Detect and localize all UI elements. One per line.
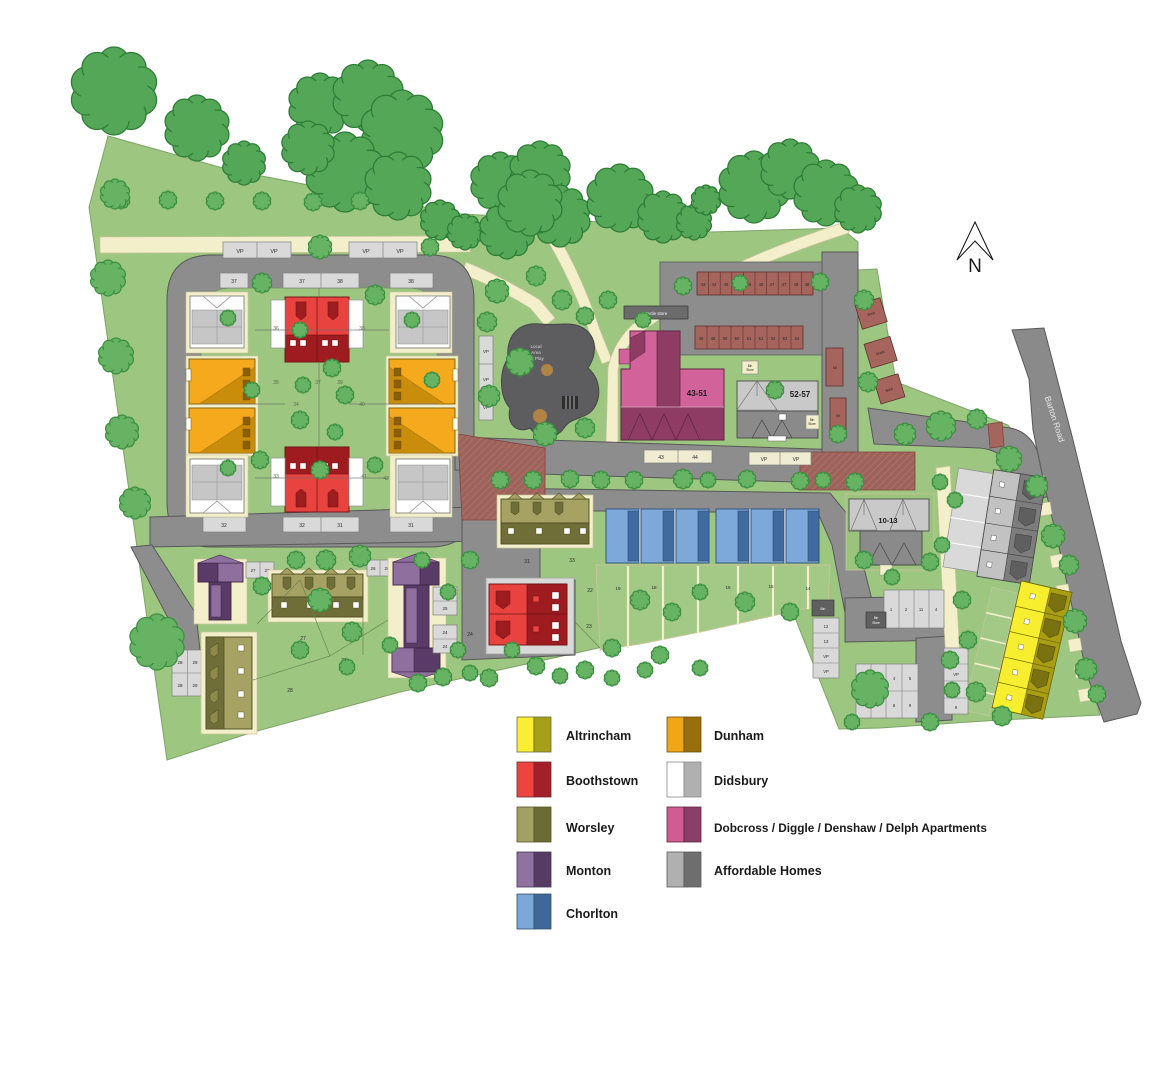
svg-text:Store: Store [746,368,754,372]
svg-text:VP: VP [823,654,829,659]
svg-text:Area: Area [531,350,541,355]
svg-text:Chorlton: Chorlton [566,907,618,921]
svg-text:VP: VP [362,249,370,255]
svg-text:Boothstown: Boothstown [566,774,638,788]
svg-text:Dunham: Dunham [714,729,764,743]
svg-text:24: 24 [467,632,473,638]
svg-text:Didsbury: Didsbury [714,774,768,788]
svg-text:29: 29 [192,683,198,688]
svg-text:VP: VP [793,457,800,463]
svg-text:32: 32 [299,523,305,529]
svg-text:14: 14 [805,586,811,591]
svg-text:Store: Store [872,621,880,625]
svg-text:24: 24 [442,644,448,649]
svg-text:31: 31 [408,523,414,529]
svg-text:45: 45 [724,282,729,287]
svg-text:13: 13 [824,639,829,644]
svg-text:49: 49 [699,336,704,341]
svg-text:VP: VP [236,249,244,255]
svg-text:33: 33 [569,558,575,564]
svg-text:44: 44 [712,282,717,287]
svg-text:38: 38 [359,326,365,332]
svg-text:53: 53 [783,336,788,341]
svg-text:38: 38 [337,279,343,285]
svg-text:28: 28 [177,683,183,688]
svg-text:15: 15 [768,584,774,589]
svg-text:19: 19 [615,586,621,591]
svg-text:31: 31 [337,523,343,529]
svg-text:47: 47 [770,282,775,287]
svg-text:43: 43 [701,282,706,287]
svg-text:VP: VP [953,672,959,677]
svg-text:10-13: 10-13 [878,516,897,525]
svg-text:42: 42 [383,476,389,482]
svg-text:52: 52 [771,336,776,341]
svg-text:44: 44 [692,455,698,461]
svg-text:43: 43 [658,455,664,461]
svg-text:50: 50 [735,336,740,341]
svg-text:52-57: 52-57 [790,390,811,399]
svg-text:N: N [968,256,982,277]
svg-text:Bin: Bin [821,607,826,611]
svg-text:39: 39 [337,380,343,386]
svg-text:34: 34 [293,402,299,408]
svg-text:37: 37 [231,279,237,285]
svg-text:48: 48 [711,336,716,341]
svg-text:Local: Local [531,344,542,349]
svg-text:Dobcross / Diggle / Denshaw /: Dobcross / Diggle / Denshaw / Delph Apar… [714,821,987,835]
svg-text:Altrincham: Altrincham [566,729,631,743]
svg-text:18: 18 [651,585,657,590]
svg-text:11: 11 [919,607,924,612]
svg-text:46: 46 [759,282,764,287]
svg-text:VP: VP [483,349,489,354]
svg-text:22: 22 [587,588,593,594]
svg-text:29: 29 [192,660,198,665]
svg-text:50: 50 [723,336,728,341]
svg-text:41: 41 [361,474,367,480]
svg-text:48: 48 [805,282,810,287]
svg-text:26: 26 [370,566,376,571]
svg-text:31: 31 [524,559,530,565]
svg-text:VP: VP [270,249,278,255]
svg-text:Worsley: Worsley [566,821,614,835]
svg-text:Store: Store [808,422,816,426]
svg-text:58: 58 [833,365,838,370]
svg-text:35: 35 [273,380,279,386]
svg-text:32: 32 [221,523,227,529]
svg-text:51: 51 [759,336,764,341]
svg-text:28: 28 [287,688,293,694]
svg-text:23: 23 [586,624,592,630]
svg-text:54: 54 [795,336,800,341]
svg-text:43-51: 43-51 [687,389,708,398]
svg-text:24: 24 [442,630,448,635]
svg-text:VP: VP [761,457,768,463]
svg-text:36: 36 [273,326,279,332]
svg-text:48: 48 [794,282,799,287]
svg-text:59: 59 [836,413,841,418]
svg-text:25: 25 [442,606,448,611]
svg-text:VP: VP [823,669,829,674]
svg-text:Bin: Bin [874,616,879,620]
svg-text:12: 12 [824,624,829,629]
svg-text:38: 38 [408,279,414,285]
svg-text:VP: VP [483,377,489,382]
svg-text:VP: VP [396,249,404,255]
svg-text:37: 37 [299,279,305,285]
svg-text:Affordable Homes: Affordable Homes [714,864,822,878]
svg-text:33: 33 [273,474,279,480]
svg-text:37: 37 [315,380,321,386]
svg-text:51: 51 [747,336,752,341]
svg-text:40: 40 [359,402,365,408]
svg-text:28: 28 [177,660,183,665]
svg-text:47: 47 [782,282,787,287]
svg-text:16: 16 [725,585,731,590]
svg-text:Monton: Monton [566,864,611,878]
svg-text:27: 27 [250,568,256,573]
